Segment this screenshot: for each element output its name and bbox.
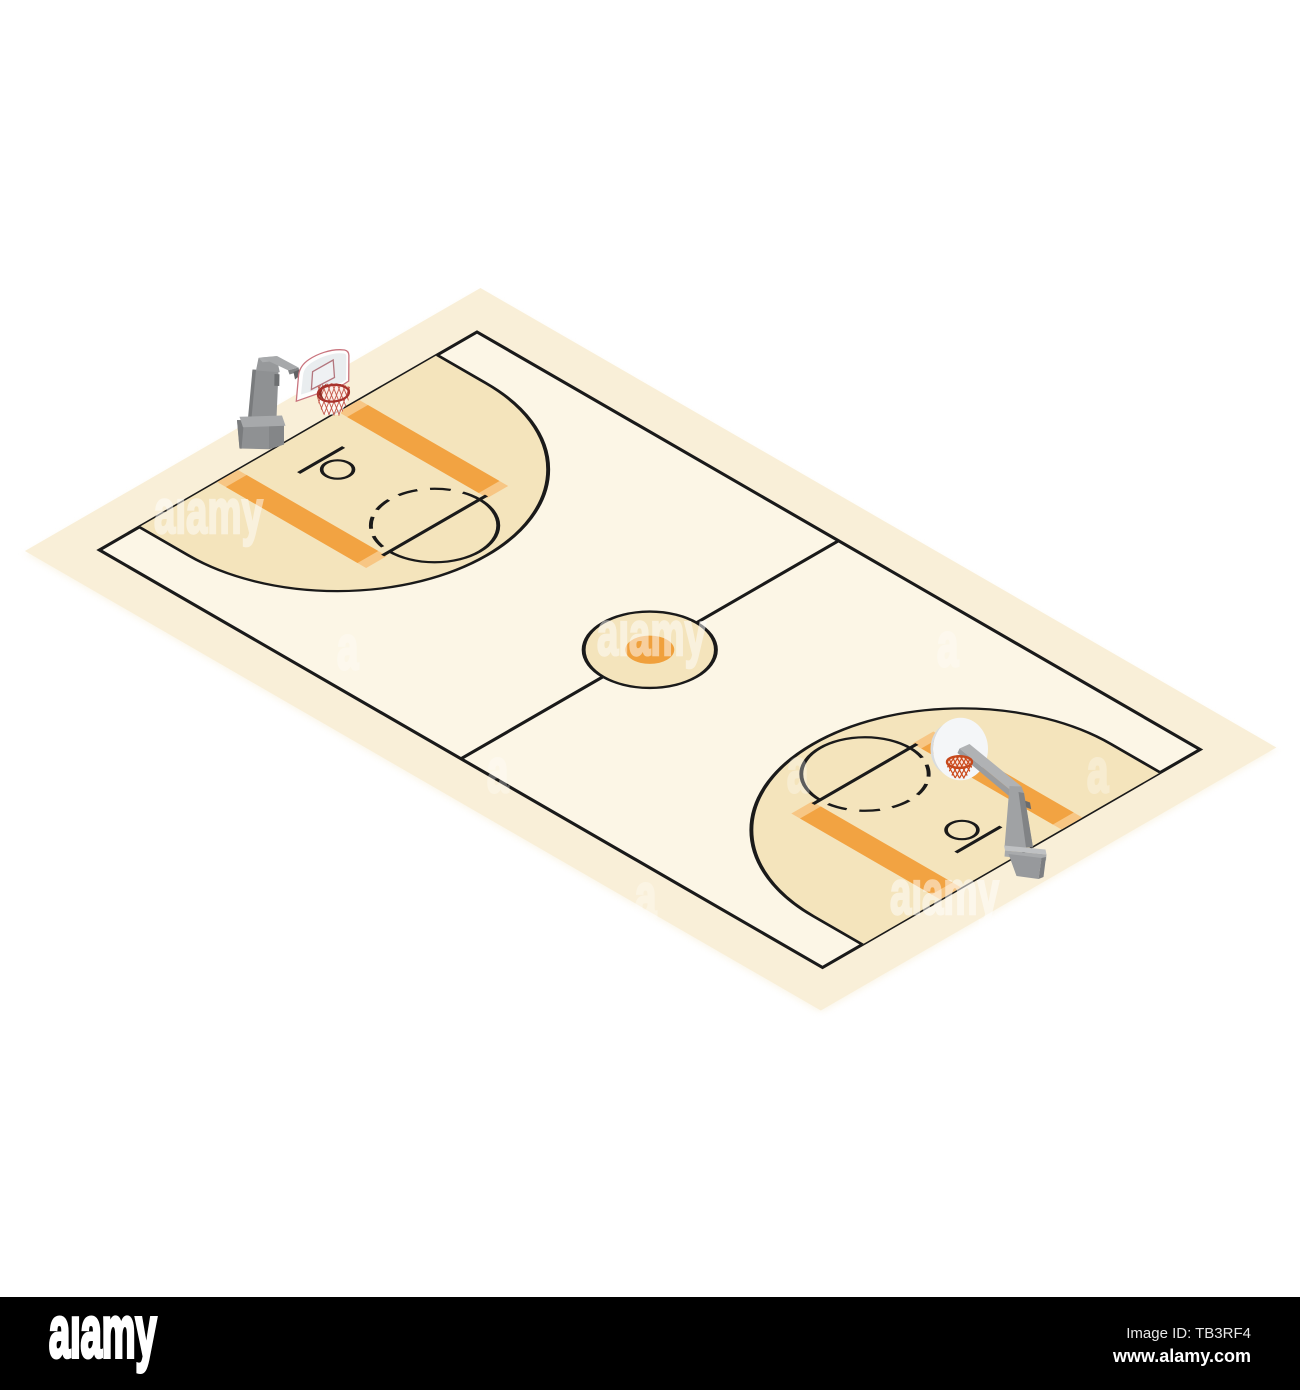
svg-text:aıamy: aıamy <box>597 599 706 669</box>
svg-text:a: a <box>937 610 959 680</box>
svg-text:a: a <box>1087 736 1109 806</box>
svg-text:Image ID: TB3RF4: Image ID: TB3RF4 <box>1126 1325 1251 1342</box>
svg-text:aıamy: aıamy <box>154 477 263 547</box>
svg-text:a: a <box>487 736 509 806</box>
svg-text:a: a <box>787 736 809 806</box>
svg-text:aıamy: aıamy <box>49 1292 157 1374</box>
svg-text:a: a <box>337 613 359 683</box>
svg-text:a: a <box>635 861 657 931</box>
svg-text:aıamy: aıamy <box>890 858 999 928</box>
svg-text:www.alamy.com: www.alamy.com <box>1112 1346 1251 1366</box>
